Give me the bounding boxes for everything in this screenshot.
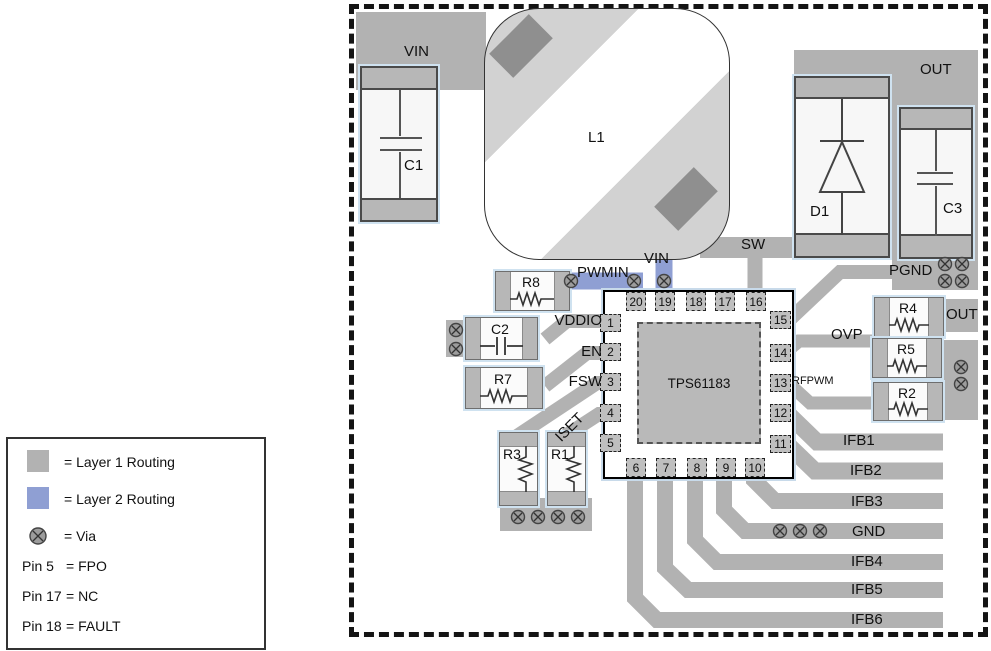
legend-pin17-name: Pin 17 — [22, 589, 62, 603]
net-label-out-r4: OUT — [946, 307, 978, 322]
legend-via-label: = Via — [64, 529, 96, 543]
via-out-1 — [955, 361, 968, 374]
via-pin20 — [628, 275, 641, 288]
via-out-2 — [955, 378, 968, 391]
via-pgnd-3 — [939, 275, 952, 288]
net-label-out-top: OUT — [920, 62, 952, 77]
net-label-pwmin: PWMIN — [577, 265, 629, 280]
net-label-vddio: VDDIO — [552, 313, 602, 328]
legend-layer1-label: = Layer 1 Routing — [64, 455, 175, 469]
net-label-ifb3: IFB3 — [851, 494, 883, 509]
via-r3-1 — [512, 511, 525, 524]
via-pwmin — [565, 275, 578, 288]
net-label-en: EN — [578, 344, 602, 359]
l1-label: L1 — [588, 130, 605, 145]
via-gnd-2 — [794, 525, 807, 538]
pcb-layout-figure: C1 D1 C3 R8 C2 — [0, 0, 991, 651]
via-pgnd-1 — [939, 258, 952, 271]
net-label-fsw: FSW — [566, 374, 602, 389]
net-label-ovp: OVP — [831, 327, 863, 342]
legend-box: = Layer 1 Routing = Layer 2 Routing = Vi… — [6, 437, 266, 650]
via-gnd-1 — [774, 525, 787, 538]
legend-layer2-label: = Layer 2 Routing — [64, 492, 175, 506]
via-pgnd-4 — [956, 275, 969, 288]
layer2-swatch — [27, 487, 49, 509]
via-r1-2 — [572, 511, 585, 524]
net-label-gnd: GND — [852, 524, 885, 539]
legend-pin17-value: = NC — [66, 589, 98, 603]
net-label-ifb4: IFB4 — [851, 554, 883, 569]
net-label-vin-pin19: VIN — [644, 251, 669, 266]
net-label-ifb5: IFB5 — [851, 582, 883, 597]
net-label-pgnd: PGND — [889, 263, 932, 278]
via-pgnd-2 — [956, 258, 969, 271]
net-label-sw: SW — [741, 237, 765, 252]
net-label-ifb6: IFB6 — [851, 612, 883, 627]
legend-pin5-value: = FPO — [66, 559, 107, 573]
via-c2-2 — [450, 343, 463, 356]
via-c2-1 — [450, 324, 463, 337]
layer1-swatch — [27, 450, 49, 472]
legend-pin5-name: Pin 5 — [22, 559, 54, 573]
net-label-ifb1: IFB1 — [843, 433, 875, 448]
legend-pin18-name: Pin 18 — [22, 619, 62, 633]
net-label-ifb2: IFB2 — [850, 463, 882, 478]
via-r3-2 — [532, 511, 545, 524]
via-pin19 — [658, 275, 671, 288]
via-gnd-3 — [814, 525, 827, 538]
via-r1-1 — [552, 511, 565, 524]
net-label-vin-top: VIN — [404, 44, 429, 59]
net-label-rfpwm: RFPWM — [792, 376, 834, 387]
legend-pin18-value: = FAULT — [66, 619, 121, 633]
via-legend-icon — [20, 521, 60, 551]
